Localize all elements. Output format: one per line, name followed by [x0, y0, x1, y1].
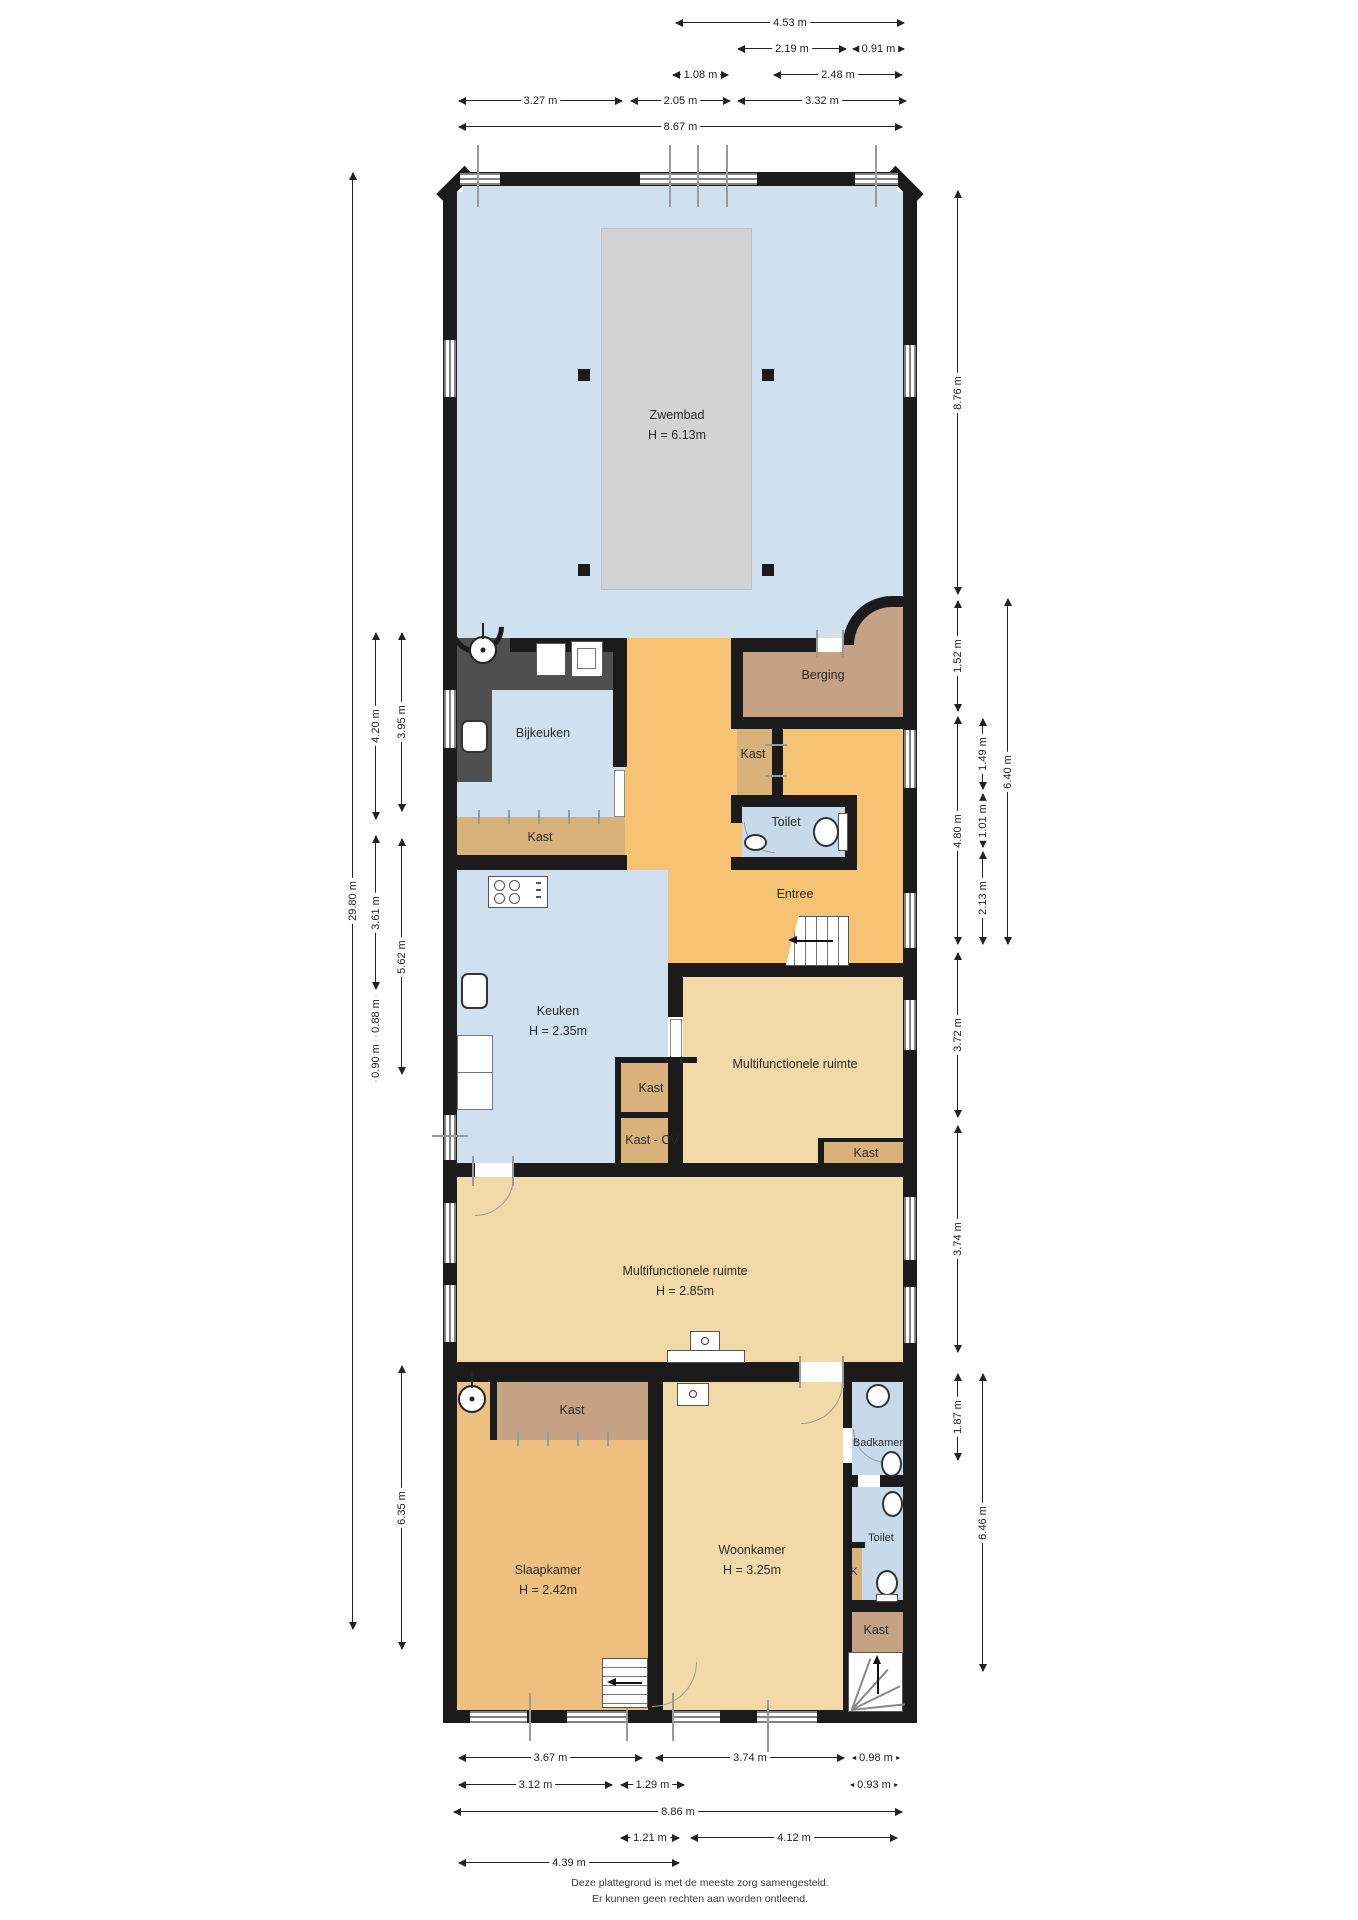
door-opening [817, 638, 843, 652]
window [904, 345, 916, 397]
room-name: Slaapkamer [515, 1560, 582, 1580]
closet-rail-tick [607, 1432, 609, 1446]
washing-machine-door-icon [577, 648, 596, 669]
dimension: 1.21 m [620, 1831, 680, 1844]
room-height: H = 2.35m [529, 1021, 587, 1041]
dimension-tick [529, 1693, 531, 1741]
room-label-berging: Berging [801, 665, 844, 685]
wall [443, 855, 627, 870]
room-label-zwembad: Zwembad H = 6.13m [648, 405, 706, 445]
dimension: 3.61 m [369, 835, 382, 990]
wall [615, 1112, 683, 1118]
closet-rail-tick [478, 810, 480, 824]
window [567, 1711, 627, 1723]
dimension: 6.40 m [1001, 598, 1014, 945]
shower-icon [458, 1385, 486, 1413]
sink-icon [866, 1384, 890, 1408]
room-label-toilet: Toilet [868, 1530, 894, 1548]
dimension: 4.12 m [690, 1831, 898, 1844]
disclaimer-line-1: Deze plattegrond is met de meeste zorg s… [571, 1876, 828, 1892]
dimension-tick [669, 145, 671, 207]
dimension: 1.87 m [951, 1373, 964, 1461]
room-label-woonkamer: Woonkamer H = 3.25m [718, 1540, 785, 1580]
pillar [578, 564, 590, 576]
dimension: 2.48 m [773, 68, 903, 81]
dimension: 1.29 m [620, 1778, 685, 1791]
dimension: 3.32 m [737, 94, 907, 107]
door-leaf [614, 770, 625, 817]
wall [731, 638, 817, 652]
dimension-tick [432, 1135, 468, 1137]
window [470, 1711, 527, 1723]
toilet-tank-icon [876, 1594, 898, 1602]
toilet-icon [813, 817, 839, 847]
stairs-direction-arrow [793, 940, 833, 942]
room-label-entree: Entree [777, 884, 814, 904]
room-height: H = 3.25m [718, 1560, 785, 1580]
wall [731, 795, 857, 807]
dimension: 8.76 m [951, 190, 964, 595]
room-label-kast: Kast [853, 1143, 878, 1163]
room-label-kast: Kast [559, 1400, 584, 1420]
dimension-tick [875, 145, 877, 207]
dimension-tick [767, 1700, 769, 1752]
wall [818, 1138, 903, 1142]
room-label-multifunctionele-2: Multifunctionele ruimte H = 2.85m [622, 1261, 747, 1301]
kitchen-counter [457, 1072, 493, 1110]
dimension: 3.12 m [458, 1778, 613, 1791]
closet-rail-tick [568, 810, 570, 824]
window [904, 730, 916, 788]
room-label-kast: Kast [740, 744, 765, 764]
dimension: 3.74 m [655, 1751, 845, 1764]
window [757, 1711, 817, 1723]
window [444, 1285, 456, 1342]
toilet-icon [876, 1570, 898, 1596]
toilet-tank-icon [838, 813, 848, 851]
closet-rail-tick [577, 1432, 579, 1446]
dimension: 0.88 m [369, 995, 382, 1037]
floor-plan: Zwembad H = 6.13m Berging Bijkeuken Kast… [0, 0, 1358, 1920]
disclaimer-line-2: Er kunnen geen rechten aan worden ontlee… [571, 1892, 828, 1908]
wall [880, 1475, 917, 1487]
window [673, 1711, 720, 1723]
dimension: 3.95 m [395, 632, 408, 812]
wall [668, 977, 683, 1017]
dimension: 3.74 m [951, 1125, 964, 1353]
room-label-kast: Kast [527, 827, 552, 847]
closet-rail-tick [547, 1432, 549, 1446]
pillar [578, 369, 590, 381]
closet-rail-tick [598, 810, 600, 824]
window [904, 1197, 916, 1260]
shower-icon [469, 636, 497, 664]
sink-icon [882, 1491, 903, 1517]
room-name: Zwembad [648, 405, 706, 425]
wall [731, 717, 917, 729]
disclaimer: Deze plattegrond is met de meeste zorg s… [571, 1876, 828, 1908]
wall [843, 1382, 852, 1428]
room-label-k: K [850, 1564, 857, 1582]
dimension: 4.80 m [951, 716, 964, 945]
room-label-badkamer: Badkamer [853, 1435, 903, 1453]
room-label-bijkeuken: Bijkeuken [516, 723, 570, 743]
dimension: 4.53 m [675, 16, 905, 29]
wall [772, 729, 783, 795]
door-leaf [670, 1019, 682, 1059]
dimension: 0.90 m [369, 1040, 382, 1082]
sink-icon [461, 973, 488, 1009]
room-label-kast: Kast [863, 1620, 888, 1640]
wall [513, 1163, 917, 1177]
wall [510, 638, 626, 652]
wall [843, 1475, 858, 1487]
closet-rail-tick [517, 1432, 519, 1446]
dimension: 0.91 m [852, 42, 905, 55]
dimension: 2.19 m [737, 42, 847, 55]
sink-icon [744, 834, 767, 851]
room-name: Multifunctionele ruimte [622, 1261, 747, 1281]
dimension: 1.08 m [672, 68, 729, 81]
door-tick [816, 630, 818, 658]
dimension-tick [726, 145, 728, 207]
wall [818, 1138, 824, 1163]
dimension: 2.05 m [630, 94, 731, 107]
wall [843, 1362, 917, 1382]
pillar [762, 369, 774, 381]
closet-rail-tick [538, 810, 540, 824]
room-height: H = 2.42m [515, 1580, 582, 1600]
dimension: 8.67 m [458, 120, 903, 133]
room-label-toilet: Toilet [771, 812, 800, 832]
room-label-slaapkamer: Slaapkamer H = 2.42m [515, 1560, 582, 1600]
room-name: Keuken [529, 1001, 587, 1021]
room-height: H = 6.13m [648, 425, 706, 445]
dimension: 3.67 m [458, 1751, 643, 1764]
wall [443, 1362, 800, 1382]
wall [615, 1057, 621, 1163]
room-height: H = 2.85m [622, 1281, 747, 1301]
dimension: 4.39 m [458, 1856, 680, 1869]
wall [443, 172, 457, 1723]
fireplace-base-icon [667, 1350, 745, 1363]
room-name: Woonkamer [718, 1540, 785, 1560]
dimension: 1.01 m [976, 793, 989, 848]
dimension: 3.27 m [458, 94, 623, 107]
room-label-kast: Kast [638, 1078, 663, 1098]
stairs-direction-arrow [612, 1682, 642, 1684]
wall [615, 1057, 697, 1063]
stove-icon [488, 876, 548, 908]
sink-icon [881, 1451, 902, 1477]
window [444, 1203, 456, 1263]
room-label-keuken: Keuken H = 2.35m [529, 1001, 587, 1041]
door-tick [842, 630, 844, 658]
dimension-tick [697, 145, 699, 207]
wall [490, 1382, 497, 1440]
dimension: 6.35 m [395, 1365, 408, 1650]
dimension: 1.52 m [951, 600, 964, 712]
room-label-multifunctionele-1: Multifunctionele ruimte [732, 1054, 857, 1074]
wall [731, 857, 857, 870]
wall [648, 1382, 663, 1710]
flue-icon [701, 1337, 709, 1345]
wall [843, 1542, 865, 1548]
closet-rail-tick [508, 810, 510, 824]
stairs-direction-arrow [877, 1660, 879, 1694]
flue-icon [689, 1390, 697, 1398]
kitchen-counter [457, 1035, 493, 1073]
wall [443, 1163, 475, 1177]
dimension: 6.46 m [976, 1373, 989, 1672]
dimension-tick [477, 145, 479, 207]
door-tick [765, 744, 787, 746]
wall [731, 807, 742, 823]
wall [613, 638, 627, 767]
dimension: 0.98 m [852, 1751, 900, 1764]
window [904, 1000, 916, 1050]
laundry-sink-icon [536, 643, 566, 676]
window [904, 1287, 916, 1343]
door-tick [472, 1156, 474, 1186]
dimension: 3.72 m [951, 952, 964, 1118]
sink-icon [461, 720, 488, 753]
dimension: 0.93 m [850, 1778, 898, 1791]
window [444, 340, 456, 397]
window [444, 1115, 456, 1160]
window [460, 173, 500, 185]
dimension: 29.80 m [346, 172, 359, 1630]
dimension: 1.49 m [976, 718, 989, 790]
window [444, 690, 456, 748]
pillar [762, 564, 774, 576]
room-label-kast-cv: Kast - CV [625, 1130, 679, 1150]
dimension: 4.20 m [369, 632, 382, 820]
dimension: 5.62 m [395, 838, 408, 1075]
dimension: 2.13 m [976, 851, 989, 945]
window [904, 893, 916, 948]
dimension: 8.86 m [453, 1805, 903, 1818]
door-tick [765, 775, 787, 777]
wall [731, 638, 743, 718]
